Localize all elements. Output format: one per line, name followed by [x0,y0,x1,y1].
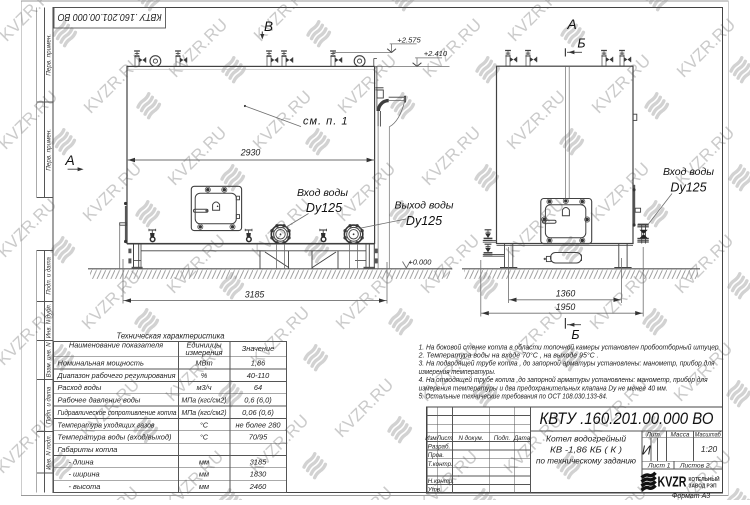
svg-text:Подп. и дата: Подп. и дата [47,256,53,294]
svg-text:Разраб.: Разраб. [428,444,450,451]
svg-text:- ширина: - ширина [69,470,100,479]
svg-text:Номинальная мощность: Номинальная мощность [58,359,144,368]
svg-text:Перв. примен.: Перв. примен. [46,34,53,76]
svg-text:В: В [264,19,273,34]
svg-text:°С: °С [200,420,209,429]
svg-text:Дата: Дата [513,435,531,442]
svg-text:2930: 2930 [240,148,261,158]
svg-text:Котел водогрейный: Котел водогрейный [546,434,626,444]
svg-text:+2.575: +2.575 [397,35,421,44]
svg-text:Т.контр.: Т.контр. [428,461,453,468]
svg-text:3185: 3185 [250,457,267,466]
svg-text:%: % [201,371,208,380]
svg-text:Листов 2: Листов 2 [679,463,710,470]
svg-text:Пров.: Пров. [428,452,444,459]
svg-text:Лист 1: Лист 1 [647,463,671,470]
svg-text:N докум.: N докум. [458,435,483,442]
svg-text:не более 280: не более 280 [235,420,281,429]
svg-text:Температура уходящих газов: Температура уходящих газов [58,420,155,429]
svg-text:МВт: МВт [195,359,212,368]
svg-text:см. п. 1: см. п. 1 [303,116,348,128]
svg-text:Б: Б [571,328,579,342]
svg-text:KVZR: KVZR [658,474,687,491]
svg-text:КВТУ .160.201.00.000 ВО: КВТУ .160.201.00.000 ВО [540,410,714,428]
svg-text:Рабочее давление воды: Рабочее давление воды [58,396,141,405]
svg-text:1360: 1360 [556,289,576,299]
svg-text:+0.000: +0.000 [409,258,433,267]
svg-text:Dy125: Dy125 [670,181,706,195]
svg-text:Утв.: Утв. [427,487,442,494]
svg-text:Н.контр.: Н.контр. [428,478,454,485]
svg-text:мм: мм [199,457,209,466]
svg-text:5. Остальные технические треб: 5. Остальные технические требования по О… [419,392,608,401]
svg-text:Формат А3: Формат А3 [672,493,710,500]
svg-text:°С: °С [200,433,209,442]
svg-text:Dy125: Dy125 [306,201,342,215]
svg-text:Подп. и дата: Подп. и дата [47,386,53,424]
svg-text:КВ -1,86 КБ ( К ): КВ -1,86 КБ ( К ) [550,445,622,455]
svg-text:Взам. инв. N: Взам. инв. N [47,342,53,378]
svg-text:40-110: 40-110 [247,371,270,380]
svg-text:Габариты котла: Габариты котла [58,445,118,454]
svg-text:Б: Б [577,37,585,51]
svg-text:1:20: 1:20 [701,444,718,454]
svg-text:- высота: - высота [69,482,101,491]
svg-text:64: 64 [254,383,262,392]
svg-text:Масштаб: Масштаб [695,430,721,438]
svg-text:Значение: Значение [242,344,274,353]
svg-text:Наименование показателя: Наименование показателя [69,341,163,350]
svg-text:Вход воды: Вход воды [663,166,714,178]
svg-text:И: И [642,444,651,458]
svg-text:Масса: Масса [671,431,690,438]
svg-text:1830: 1830 [250,470,267,479]
svg-text:0,06 (0,6): 0,06 (0,6) [242,408,274,417]
svg-text:ЗАВОД РЭП: ЗАВОД РЭП [689,483,717,489]
svg-text:Температура воды (вход/выход): Температура воды (вход/выход) [58,433,173,442]
svg-text:70/95: 70/95 [249,433,268,442]
svg-text:Инв. N подл.: Инв. N подл. [47,435,53,470]
svg-text:измерения: измерения [186,348,223,357]
svg-text:КОТЕЛЬНЫЙ: КОТЕЛЬНЫЙ [689,475,720,483]
svg-text:Техническая характеристика: Техническая характеристика [117,330,225,340]
svg-text:м3/ч: м3/ч [196,383,211,392]
svg-text:МПа (кгс/см2): МПа (кгс/см2) [182,396,227,405]
svg-text:3185: 3185 [245,290,265,300]
svg-text:КВТУ .160.201.00.000 ВО: КВТУ .160.201.00.000 ВО [58,11,162,22]
svg-text:2460: 2460 [249,482,267,491]
svg-text:Расход воды: Расход воды [58,383,102,392]
svg-text:- длина: - длина [69,457,94,466]
svg-text:Диапазон рабочего регулировани: Диапазон рабочего регулирования [57,371,176,380]
svg-text:мм: мм [199,470,209,479]
svg-text:Гидравлическое сопротивление к: Гидравлическое сопротивление котла [58,408,177,417]
svg-text:Подп.: Подп. [494,435,510,442]
svg-text:Dy125: Dy125 [406,214,442,228]
svg-text:1950: 1950 [556,302,576,312]
svg-text:Инв. N дубл.: Инв. N дубл. [47,304,53,339]
svg-text:Перв. примен.: Перв. примен. [46,129,53,171]
svg-text:Выход воды: Выход воды [394,200,453,212]
svg-text:0,6 (6,0): 0,6 (6,0) [244,396,272,405]
svg-text:А: А [64,152,74,168]
svg-text:А: А [566,16,576,32]
svg-text:1,86: 1,86 [251,359,266,368]
svg-text:мм: мм [199,482,209,491]
svg-text:по техническому заданию: по техническому заданию [536,456,637,466]
svg-text:МПа (кгс/см2): МПа (кгс/см2) [182,408,227,417]
svg-text:+2.410: +2.410 [424,49,448,58]
svg-text:Лит.: Лит. [646,431,662,438]
svg-text:Лист: Лист [436,435,453,442]
svg-text:Вход воды: Вход воды [297,187,348,199]
